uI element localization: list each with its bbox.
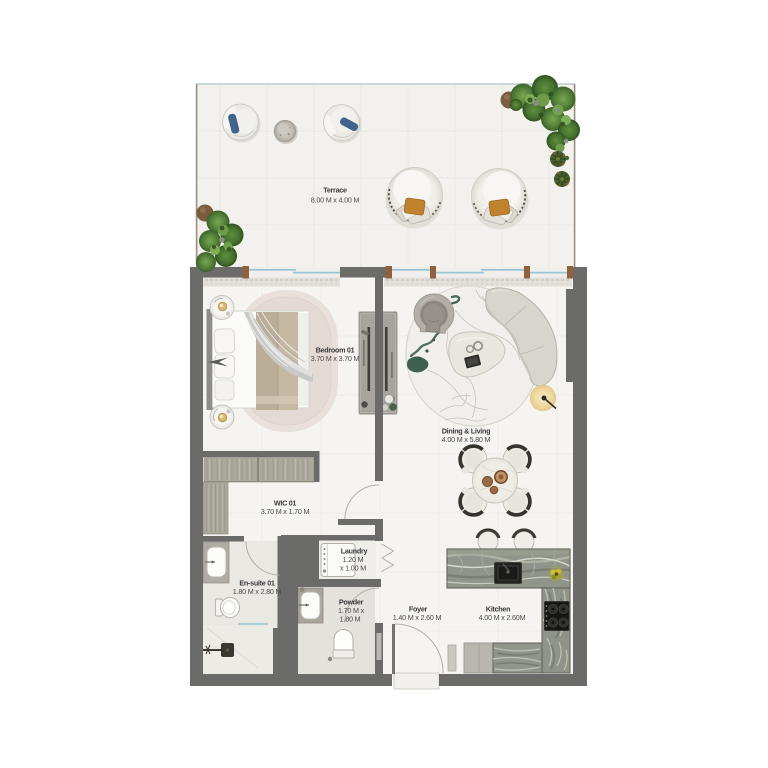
svg-text:8.00 M x 4.00 M: 8.00 M x 4.00 M <box>311 196 360 205</box>
svg-text:4.00 M x 5.80 M: 4.00 M x 5.80 M <box>442 435 491 444</box>
svg-text:1.80 M: 1.80 M <box>340 615 361 624</box>
svg-text:x 1.00 M: x 1.00 M <box>340 564 366 573</box>
svg-text:1.40 M x 2.60 M: 1.40 M x 2.60 M <box>393 613 442 622</box>
svg-text:Terrace: Terrace <box>323 186 347 195</box>
svg-text:4.00 M x 2.60M: 4.00 M x 2.60M <box>479 613 526 622</box>
svg-text:3.70 M x 3.70 M: 3.70 M x 3.70 M <box>311 354 360 363</box>
svg-text:1.80 M x 2.80 M: 1.80 M x 2.80 M <box>233 587 282 596</box>
svg-text:3.70 M x 1.70 M: 3.70 M x 1.70 M <box>261 507 310 516</box>
